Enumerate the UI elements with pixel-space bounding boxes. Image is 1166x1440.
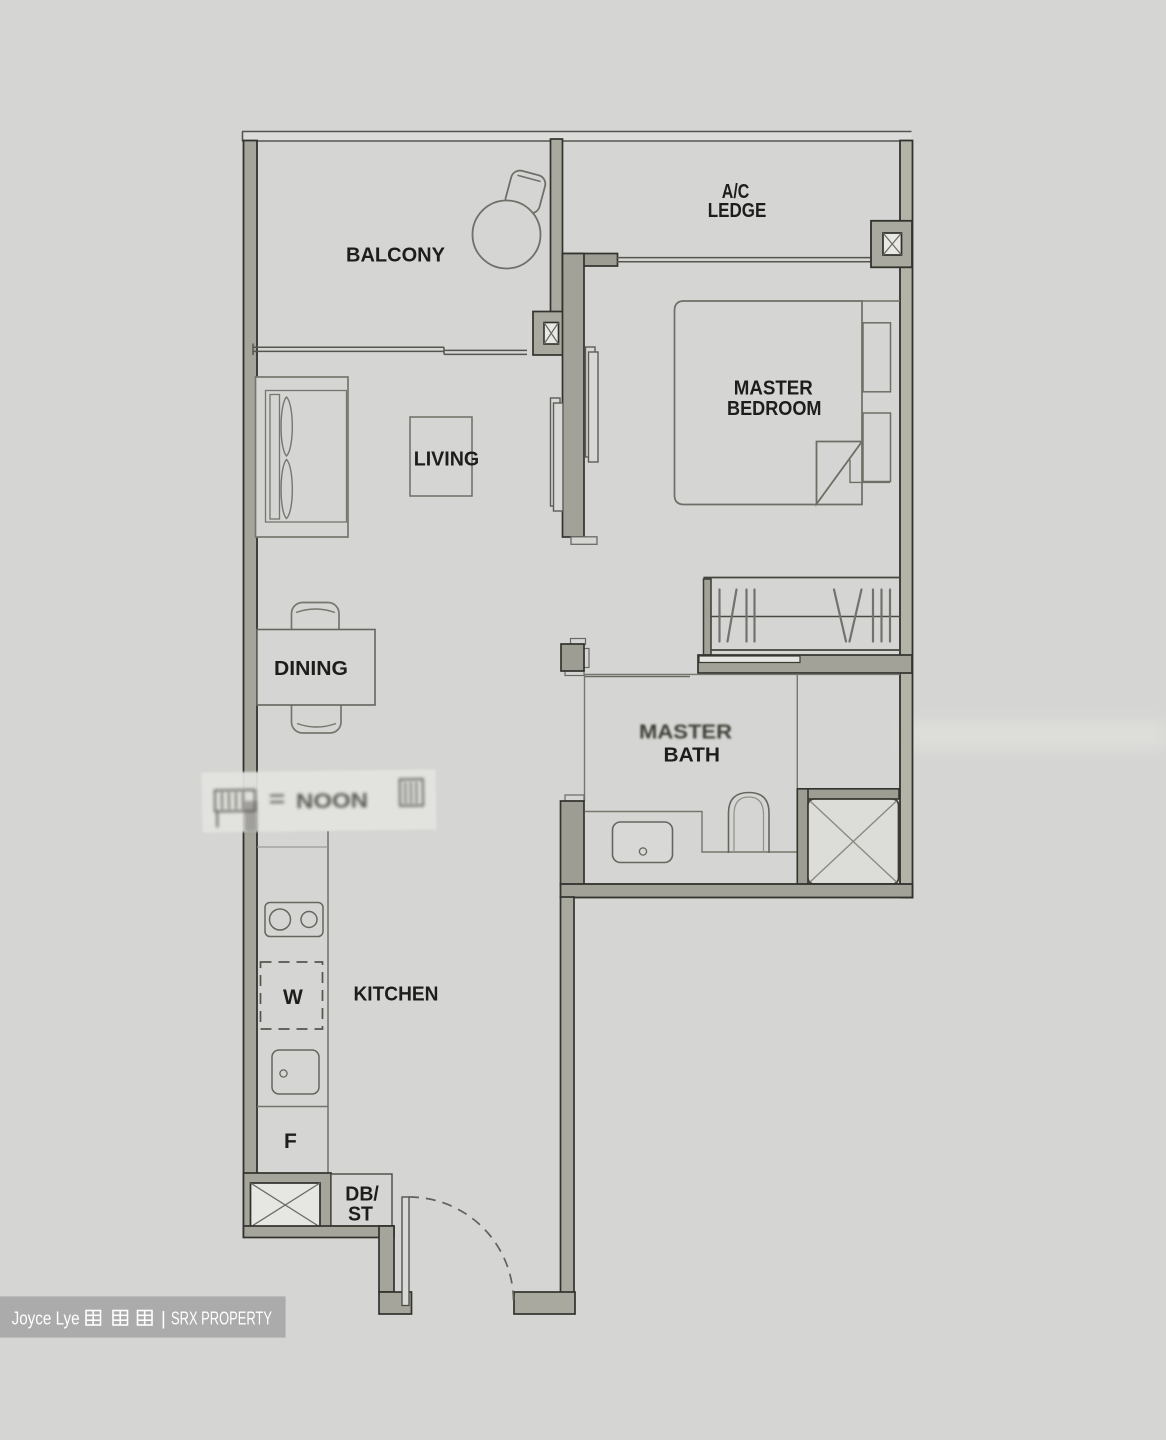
svg-text:BEDROOM: BEDROOM [727,398,822,420]
svg-text:MASTER: MASTER [734,378,814,400]
svg-text:LIVING: LIVING [414,449,480,471]
svg-text:F: F [284,1130,297,1153]
svg-text:DB/: DB/ [345,1184,379,1206]
svg-text:DINING: DINING [274,658,348,680]
svg-text:|: | [161,1308,166,1329]
svg-text:BALCONY: BALCONY [346,245,446,267]
svg-text:LEDGE: LEDGE [708,200,767,222]
svg-text:ST: ST [348,1204,373,1226]
svg-text:Joyce Lye: Joyce Lye [12,1308,80,1329]
svg-text:BATH: BATH [664,745,721,767]
svg-text:NOON: NOON [296,789,368,813]
svg-text:KITCHEN: KITCHEN [354,984,439,1006]
svg-text:SRX PROPERTY: SRX PROPERTY [171,1308,272,1329]
svg-text:W: W [283,986,303,1009]
